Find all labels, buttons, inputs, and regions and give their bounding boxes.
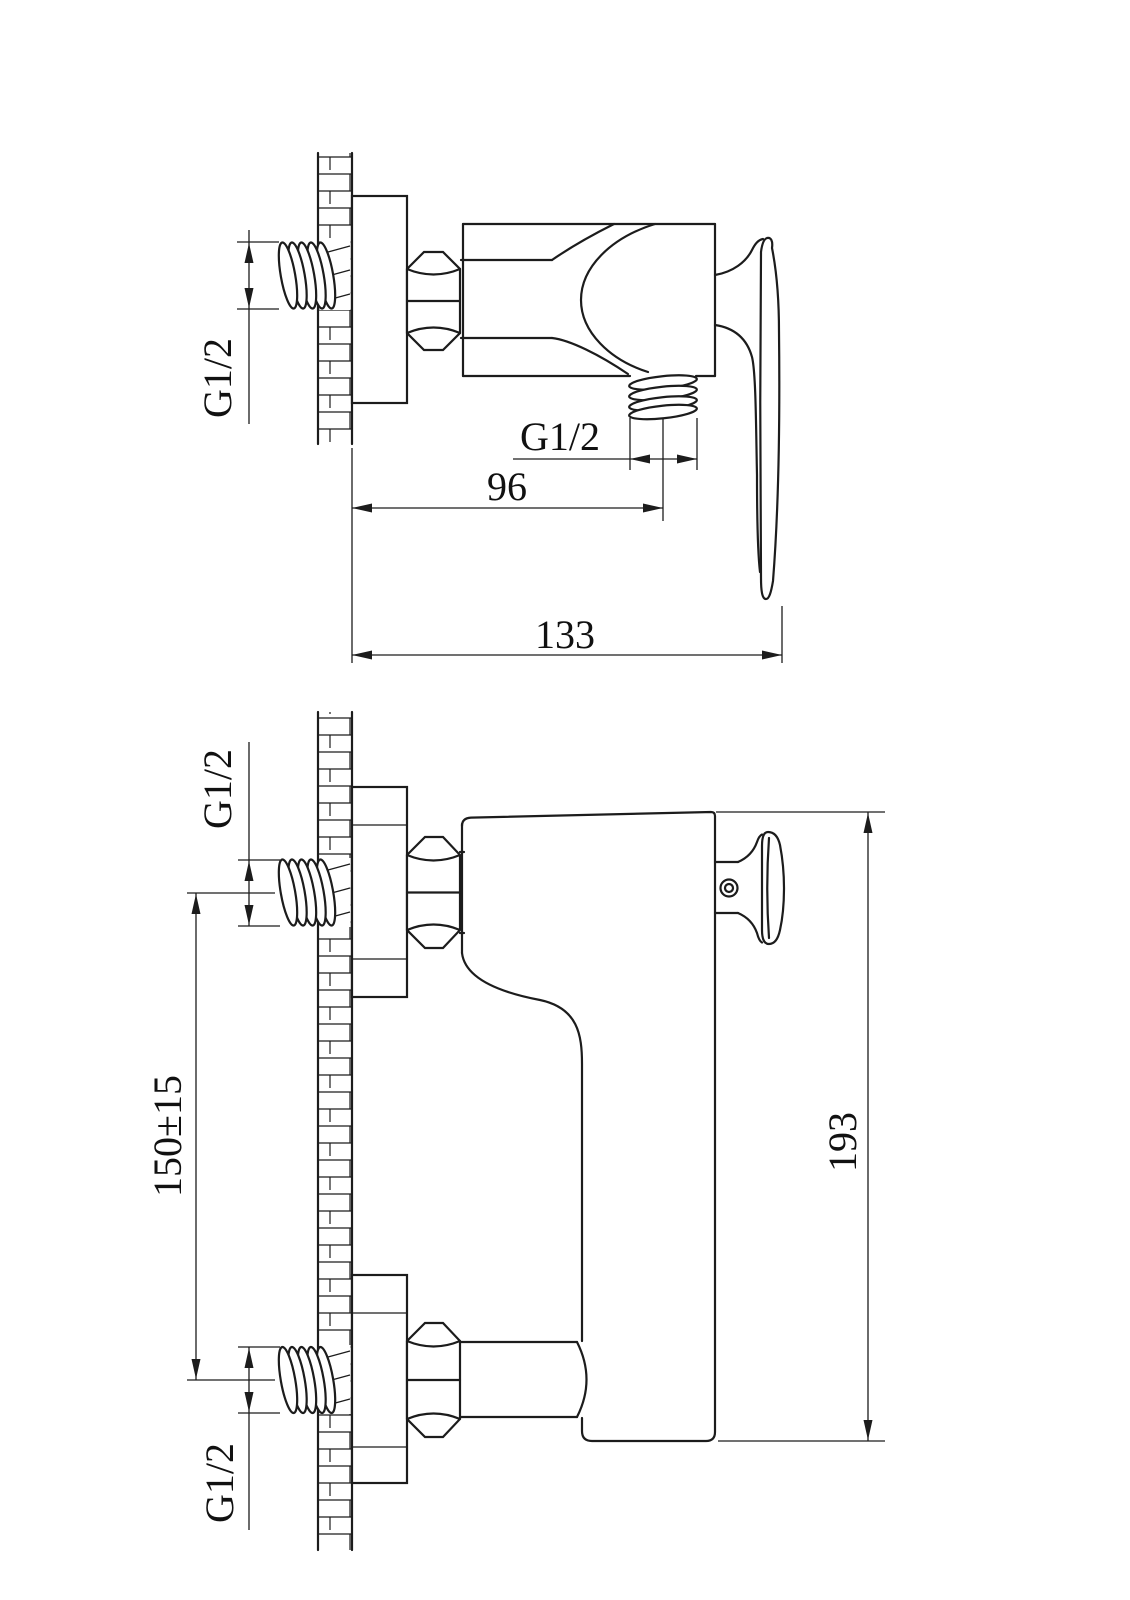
label-inlet-top: G1/2: [195, 749, 240, 829]
front-view: G1/2 150±15 G1/2 193: [145, 712, 885, 1550]
dim-inlet-thread-bottom: G1/2: [197, 1347, 280, 1530]
valve-body: [461, 812, 715, 1441]
escutcheon-bottom: [352, 1275, 407, 1483]
dim-133: 133: [352, 606, 782, 663]
dim-150: 150±15: [145, 893, 275, 1380]
bottom-inlet-pipe: [461, 1342, 587, 1417]
hex-nut: [407, 252, 460, 350]
shoulder-top-arc: [552, 224, 614, 260]
label-193: 193: [820, 1112, 865, 1172]
handle-neck-top: [715, 239, 763, 275]
valve-body: [461, 224, 715, 376]
handle-lever: [715, 238, 779, 599]
escutcheon-top: [352, 787, 407, 997]
wall-hatch-fill: [318, 712, 352, 1550]
mixer-technical-drawing: G1/2 G1/2 96 133: [0, 0, 1130, 1600]
dim-outlet-thread: G1/2: [513, 414, 697, 521]
handle-knob: [715, 832, 784, 944]
hex-nut-bottom: [407, 1323, 460, 1437]
handle-blade: [760, 238, 779, 599]
dim-inlet-thread: G1/2: [195, 230, 279, 424]
body-s-curve: [462, 953, 582, 1341]
label-150: 150±15: [145, 1075, 190, 1197]
hex-nut-top: [407, 837, 464, 948]
label-inlet-bottom: G1/2: [197, 1443, 242, 1523]
handle-neck-bottom: [715, 325, 760, 572]
escutcheon: [352, 196, 407, 403]
knob-face: [762, 832, 784, 944]
label-133: 133: [535, 612, 595, 657]
label-inlet-thread: G1/2: [195, 338, 240, 418]
dim-96: 96: [352, 448, 663, 663]
drawing-canvas: G1/2 G1/2 96 133: [0, 0, 1130, 1600]
handle-screw: [721, 880, 738, 897]
dim-inlet-thread-top: G1/2: [195, 742, 280, 926]
outlet-thread: [629, 373, 698, 422]
dim-193: 193: [716, 812, 885, 1441]
label-96: 96: [487, 464, 527, 509]
label-outlet-thread: G1/2: [520, 414, 600, 459]
ball-housing-arc: [581, 224, 655, 372]
side-view: G1/2 G1/2 96 133: [195, 153, 782, 663]
wall-hatch: [318, 712, 352, 1550]
